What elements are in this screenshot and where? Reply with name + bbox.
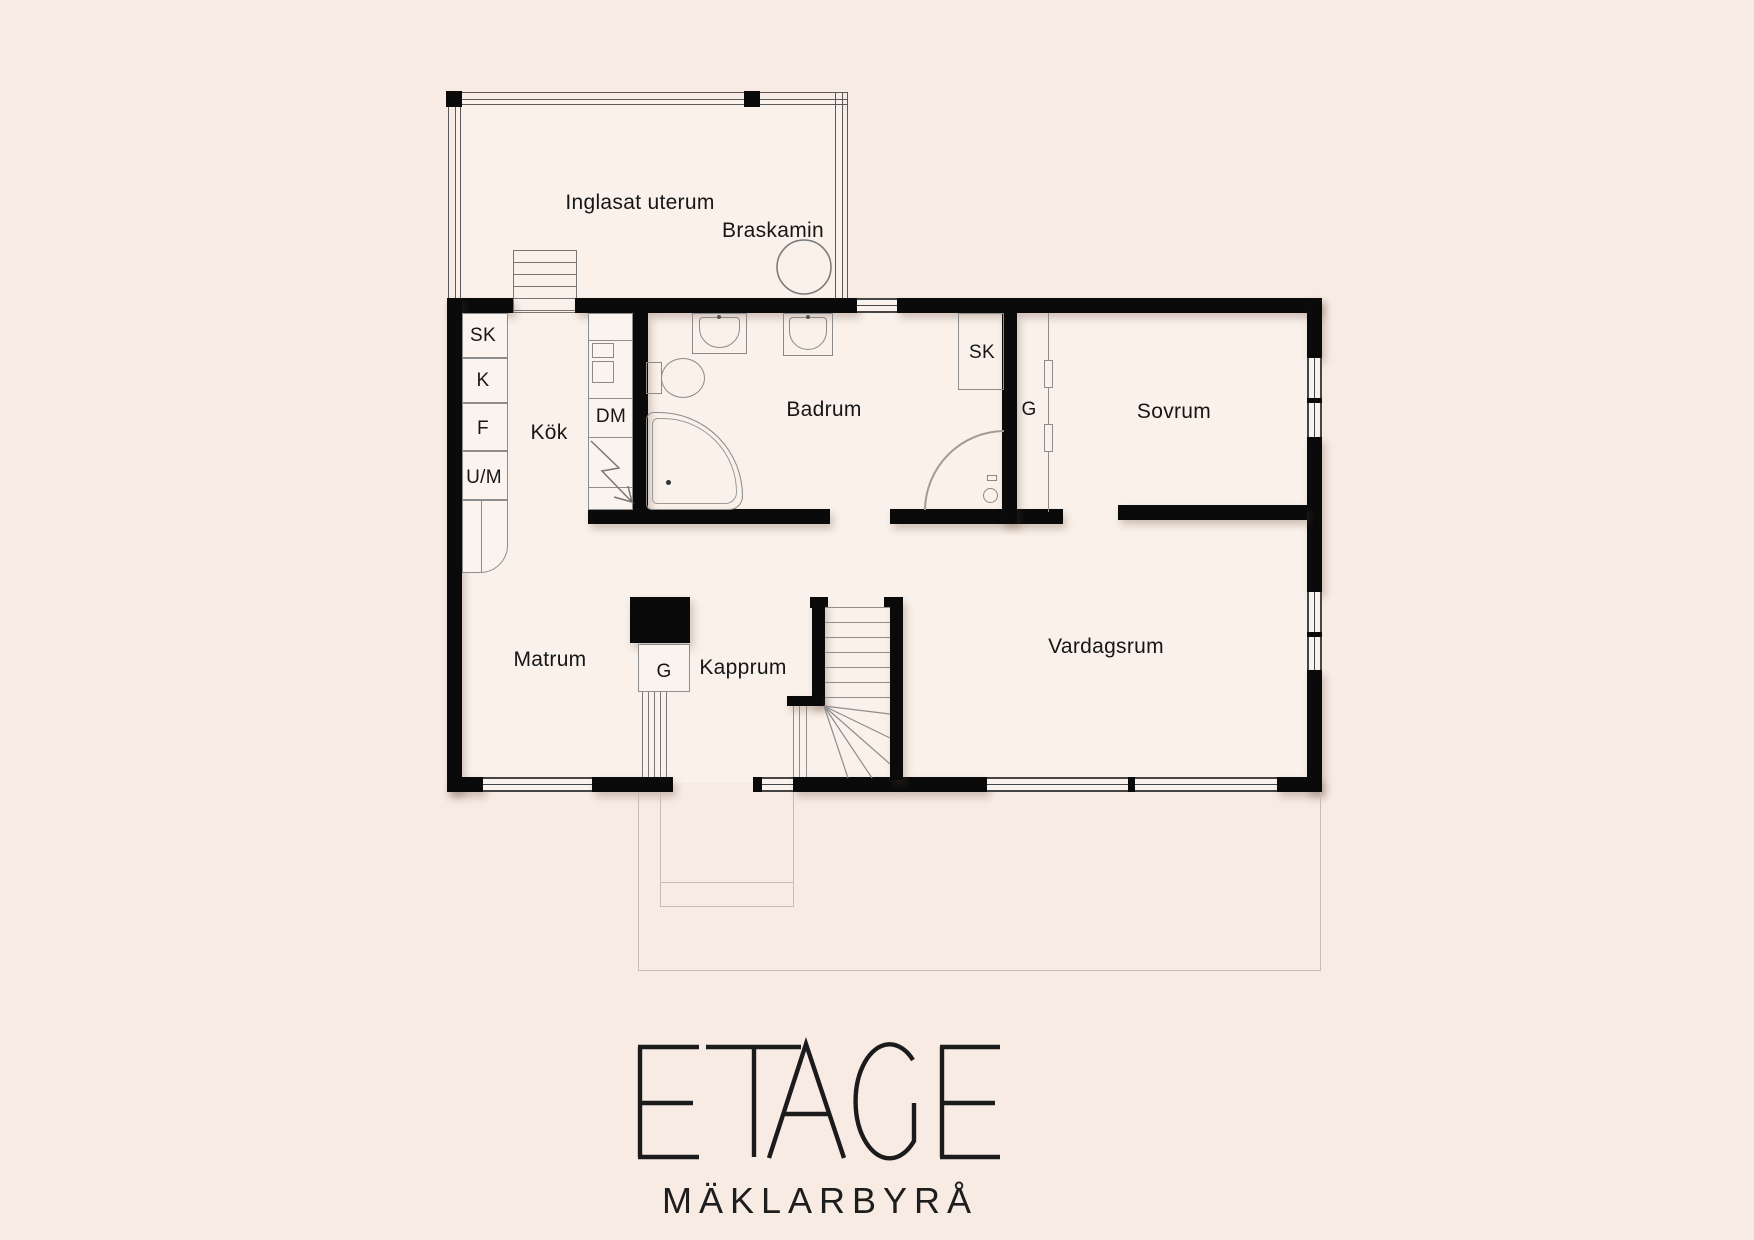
window-living-room-east — [1307, 637, 1322, 670]
conservatory-corner-post-mid — [744, 91, 760, 107]
label-bedroom: Sovrum — [1137, 400, 1211, 424]
closet-g-partition — [1048, 313, 1049, 512]
house-floor — [458, 308, 1313, 783]
wall-exterior-bottom — [447, 777, 483, 792]
counter-divider — [588, 487, 633, 488]
window-living-room-south — [987, 777, 1128, 792]
stair-tread — [825, 652, 890, 653]
floor-drain — [983, 488, 998, 503]
window-bathroom-top — [857, 298, 897, 313]
wall-exterior-bottom — [1277, 777, 1322, 792]
stair-tread — [825, 697, 890, 698]
sink-faucet — [806, 315, 810, 319]
conservatory-corner-post-left — [446, 91, 462, 107]
label-cloakroom: Kapprum — [699, 656, 786, 680]
stair-lower-edge — [793, 706, 794, 777]
counter-divider — [588, 398, 633, 399]
kitchen-cabinet-detail — [592, 361, 614, 383]
stair-tread — [825, 637, 890, 638]
label-closet-g-hall: G — [656, 661, 671, 683]
closet-g-door-handle — [1044, 424, 1053, 452]
label-dishwasher: DM — [596, 406, 626, 428]
logo-etage — [638, 1044, 1000, 1158]
floor-plan-page: Inglasat uterum Braskamin SK K F U/M Kök… — [0, 0, 1754, 1240]
wall-exterior-top — [575, 298, 857, 313]
stair-tread — [825, 622, 890, 623]
porch-side — [793, 792, 794, 907]
stair-tread — [825, 667, 890, 668]
label-bathroom: Badrum — [786, 398, 861, 422]
wall-bathroom-south — [890, 509, 1063, 524]
label-closet-sk-bath: SK — [969, 342, 995, 364]
stair-wall-right — [890, 598, 903, 780]
drain-detail — [987, 475, 997, 481]
label-closet-g-bedroom: G — [1021, 399, 1036, 421]
window-living-room-south — [1135, 777, 1277, 792]
kitchen-cabinet-detail — [592, 343, 614, 358]
stair-tread — [825, 682, 890, 683]
entrance-sidelight — [762, 777, 793, 792]
porch-step — [660, 882, 794, 883]
porch-side — [660, 792, 661, 907]
label-closet-um: U/M — [466, 467, 502, 489]
label-conservatory: Inglasat uterum — [565, 191, 714, 215]
label-fireplace: Braskamin — [722, 219, 824, 243]
deck-edge-right — [1320, 792, 1321, 971]
hall-radiator — [642, 692, 669, 777]
window-bedroom — [1307, 403, 1322, 437]
porch-step — [660, 906, 794, 907]
label-dining-room: Matrum — [514, 648, 587, 672]
hall-chimney-block — [630, 597, 690, 643]
deck-edge-left — [638, 792, 639, 971]
conservatory-glass-wall-left — [448, 92, 461, 298]
label-closet-sk-kitchen: SK — [470, 325, 496, 347]
stair-lower-tread — [799, 706, 800, 777]
wall-bathroom-south — [588, 509, 830, 524]
wall-bathroom-east — [1002, 313, 1017, 524]
stair-wall-corner — [787, 696, 823, 706]
entrance-door-post — [753, 777, 762, 792]
label-closet-f: F — [477, 418, 489, 440]
wall-exterior-bottom — [592, 777, 673, 792]
label-closet-k: K — [477, 370, 490, 392]
toilet-bowl — [661, 358, 705, 398]
bathtub-drain — [666, 480, 671, 485]
wall-exterior-right — [1307, 437, 1322, 592]
stair-tread — [825, 607, 890, 608]
window-mullion — [1128, 777, 1135, 792]
conservatory-steps — [513, 250, 577, 313]
logo-tagline: MÄKLARBYRÅ — [662, 1180, 978, 1222]
logo-name-text: ETAGE — [0, 0, 1, 1]
wall-bedroom-living — [1118, 505, 1307, 520]
wall-exterior-top — [897, 298, 1322, 313]
counter-divider — [588, 340, 633, 341]
window-living-room-east — [1307, 592, 1322, 632]
conservatory-glass-wall-top — [448, 92, 847, 105]
label-kitchen: Kök — [530, 421, 567, 445]
closet-g-door-handle — [1044, 360, 1053, 388]
toilet-tank — [646, 362, 662, 394]
wall-exterior-right — [1307, 298, 1322, 358]
deck-edge-bottom — [638, 970, 1321, 971]
label-living-room: Vardagsrum — [1048, 635, 1164, 659]
wall-exterior-right — [1307, 670, 1322, 792]
sink-faucet — [717, 315, 721, 319]
kitchen-counter-end — [462, 500, 508, 573]
stair-wall-left — [812, 600, 825, 706]
counter-divider — [481, 500, 482, 572]
counter-divider — [588, 437, 633, 438]
wall-exterior-left — [447, 298, 462, 792]
conservatory-glass-wall-right — [835, 92, 848, 298]
window-dining-room — [483, 777, 592, 792]
stair-lower-tread — [806, 706, 807, 777]
window-bedroom — [1307, 358, 1322, 398]
